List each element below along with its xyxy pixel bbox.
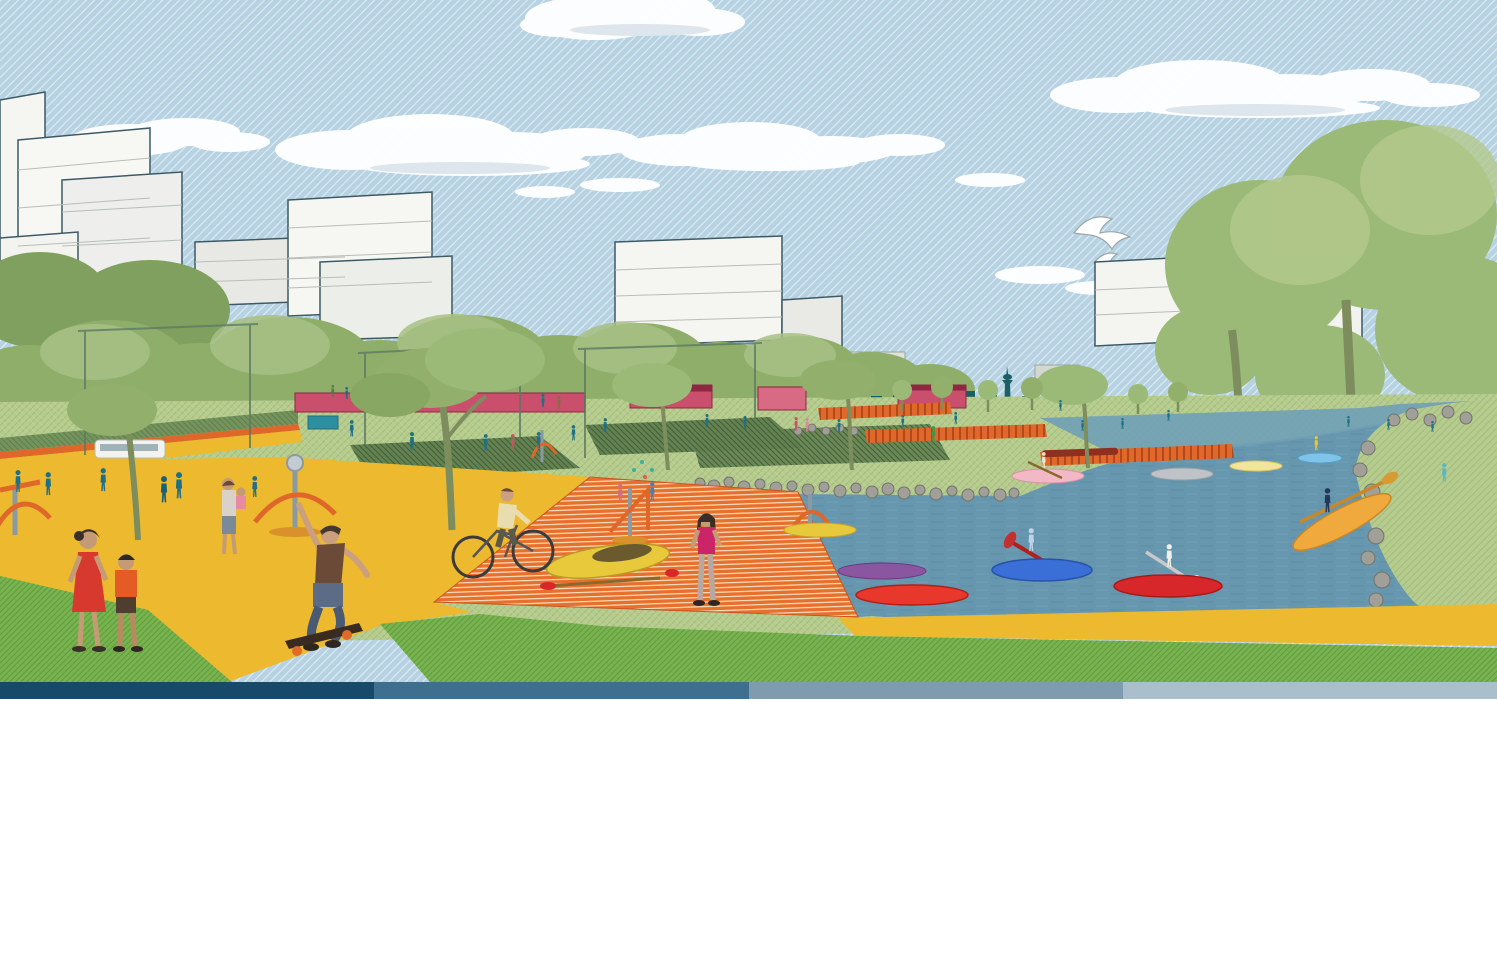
bar-segment-2 — [374, 682, 748, 699]
canoe-purple — [838, 563, 926, 579]
bar-segment-4 — [1123, 682, 1497, 699]
cover-footer: LAKEVIEW VILLAGE DEVELOPMENT MASTER PLAN… — [0, 699, 1497, 969]
document-cover-page: LAKEVIEW VILLAGE DEVELOPMENT MASTER PLAN… — [0, 0, 1497, 969]
kayak-pale-yellow — [1230, 461, 1282, 471]
footer-divider-bar — [0, 682, 1497, 699]
bar-segment-1 — [0, 682, 374, 699]
canoe-gray — [1151, 468, 1213, 480]
park-rendering-illustration — [0, 0, 1497, 682]
kayak-beached-edge — [784, 523, 856, 537]
park-sign — [308, 416, 338, 429]
bar-segment-3 — [749, 682, 1123, 699]
canoe-red — [856, 585, 968, 605]
